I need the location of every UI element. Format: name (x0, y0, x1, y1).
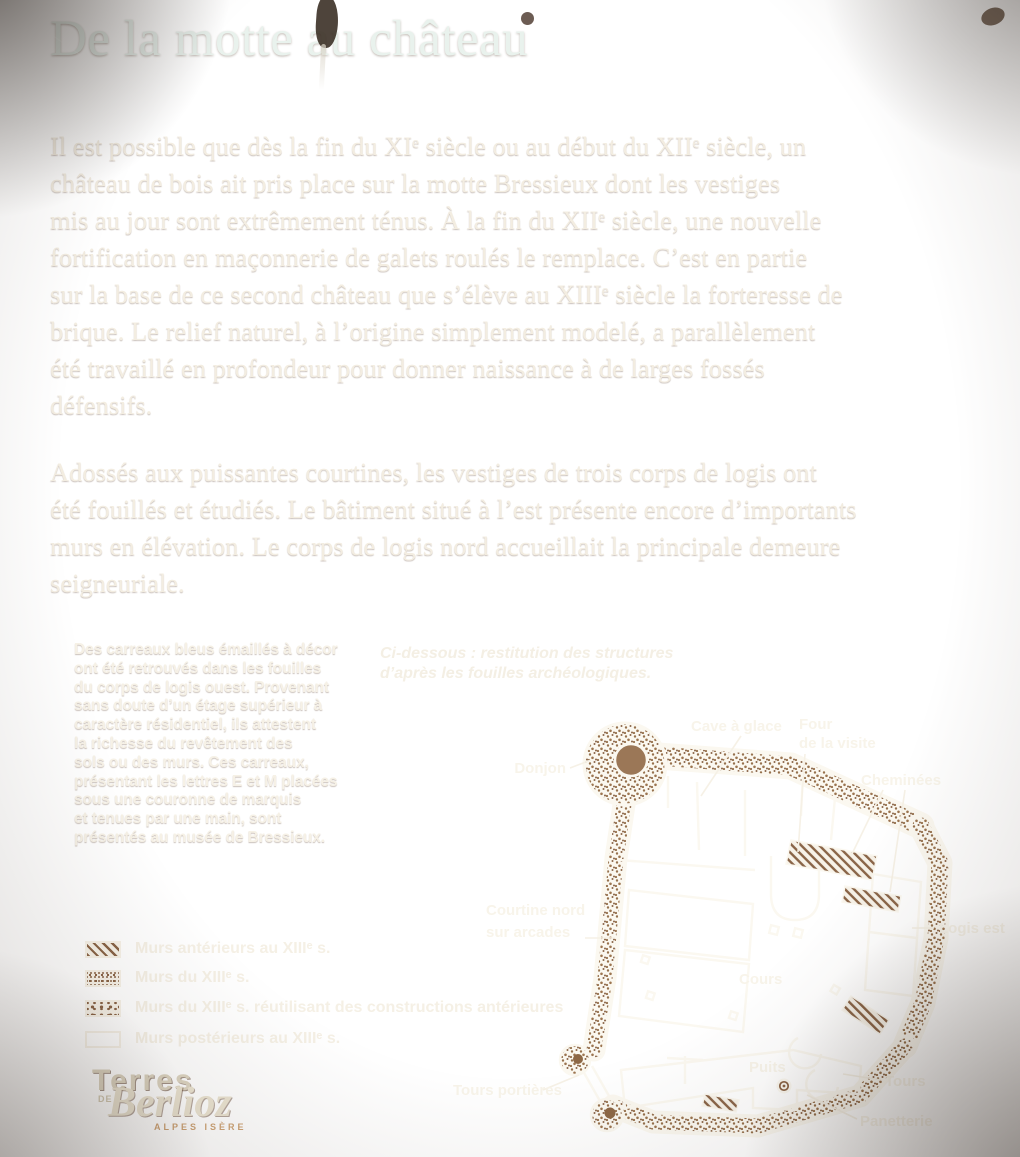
post-base (769, 925, 779, 935)
legend-item: Murs du XIIIᵉ s. (85, 967, 249, 989)
legend-item: Murs postérieurs au XIIIᵉ s. (85, 1028, 340, 1050)
north-room-partition (697, 782, 699, 850)
fine-stipple-swatch-icon (85, 970, 121, 987)
terres-berlioz-logo: Terres DE Berlioz ALPES ISÈRE (92, 1064, 312, 1132)
label-panetterie: Panetterie (860, 1113, 933, 1130)
hatched-wall (842, 996, 889, 1034)
label-cave-a-glace: Cave à glace (691, 718, 782, 735)
gate-passage (583, 1066, 609, 1101)
legend-item-label: Murs du XIIIᵉ s. (135, 969, 249, 987)
label-four-line1: Four (799, 716, 832, 733)
coarse-stipple-swatch-icon (85, 1000, 121, 1017)
donjon-tower (584, 723, 666, 805)
plan-labels: Donjon Cave à glace Four de la visite Ch… (453, 716, 1005, 1130)
information-panel: De la motte au château Il est possible q… (0, 0, 1020, 1157)
panel-title: De la motte au château (50, 10, 528, 68)
castle-plan: Donjon Cave à glace Four de la visite Ch… (453, 698, 1018, 1157)
label-logis-est: Logis est (939, 920, 1005, 937)
label-courtine-line1: Courtine nord (486, 902, 585, 919)
label-tours-portieres: Tours portières (453, 1082, 562, 1099)
label-four-line2: de la visite (799, 735, 876, 752)
plan-caption: Ci-dessous : restitution des structures … (380, 644, 673, 684)
south-range-partition (667, 1056, 703, 1084)
outline-swatch-icon (85, 1031, 121, 1048)
label-donjon: Donjon (514, 760, 566, 777)
courtyard-post (830, 985, 840, 995)
label-cheminees: Cheminées (861, 772, 941, 789)
excavation-paragraph: Adossés aux puissantes courtines, les ve… (50, 454, 857, 602)
hatched-wall (702, 1094, 739, 1112)
post-base (793, 928, 803, 938)
legend-item: Murs antérieurs au XIIIᵉ s. (85, 938, 330, 960)
label-courtine-line2: sur arcades (486, 924, 570, 941)
courtyard-post (641, 955, 650, 964)
logo-alpes-isere-text: ALPES ISÈRE (154, 1122, 312, 1132)
west-range-room (625, 890, 753, 960)
courtyard-post (646, 991, 655, 1000)
label-cours: Cours (739, 971, 782, 988)
legend-item-label: Murs antérieurs au XIIIᵉ s. (135, 940, 330, 958)
courtyard-post (729, 1011, 738, 1020)
well-symbol (777, 1079, 792, 1094)
north-room-partition (831, 798, 835, 840)
intro-paragraph: Il est possible que dès la fin du XIᵉ si… (50, 128, 843, 424)
north-range-wall (619, 860, 755, 870)
logo-berlioz-text: Berlioz (108, 1086, 312, 1120)
east-range-partition (869, 932, 917, 938)
hatched-wall (786, 840, 877, 880)
label-puits: Puits (749, 1059, 786, 1076)
hatch-swatch-icon (85, 941, 121, 958)
legend-item-label: Murs postérieurs au XIIIᵉ s. (135, 1030, 340, 1048)
logo-de-text: DE (98, 1094, 113, 1104)
dark-spot (979, 4, 1007, 28)
tiles-note: Des carreaux bleus émaillés à décor ont … (74, 641, 338, 848)
label-tours: Tours (885, 1073, 926, 1090)
west-range-room (619, 950, 749, 1032)
